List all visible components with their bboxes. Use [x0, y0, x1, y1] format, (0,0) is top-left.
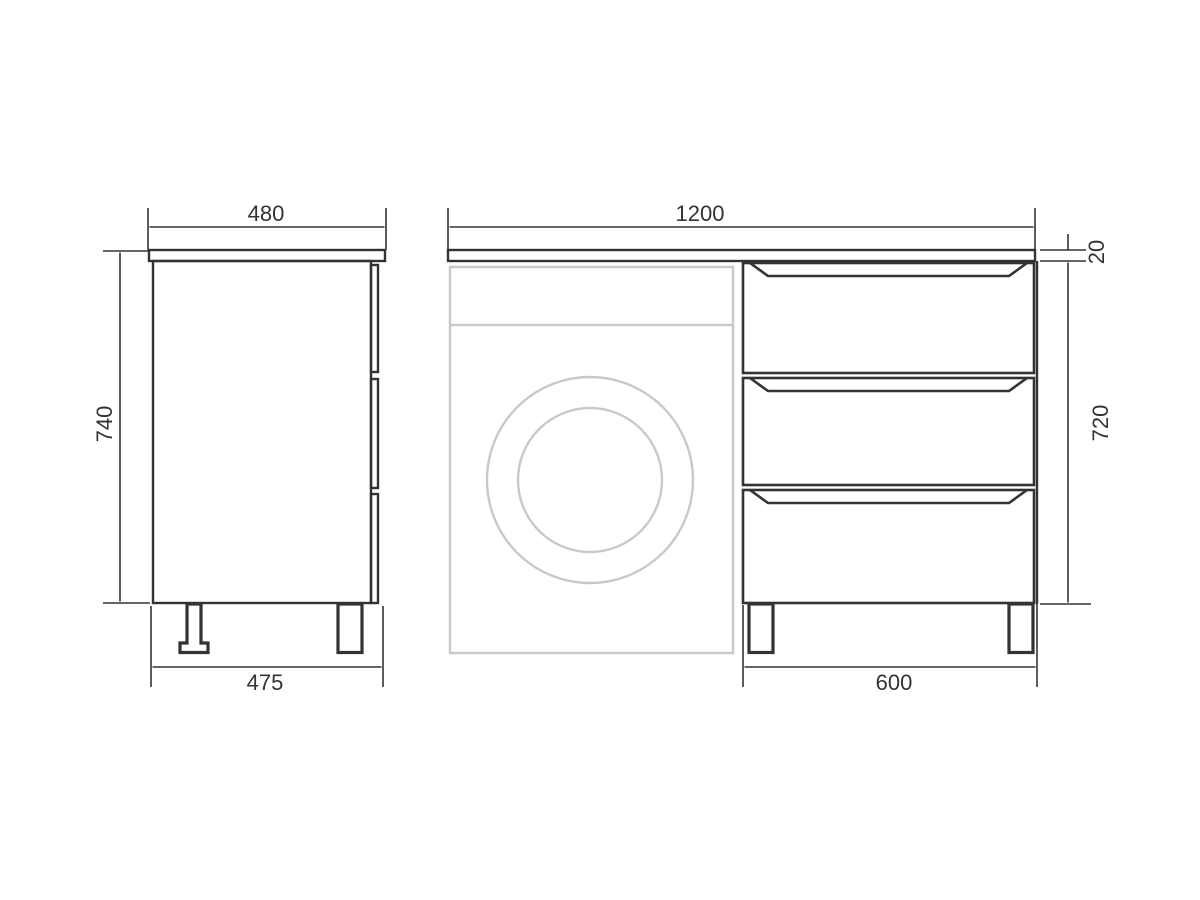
dimension-label-720: 720 [1088, 405, 1113, 442]
drawer-1-handle-recess [750, 263, 1027, 276]
drawer-3-handle-recess [750, 490, 1027, 503]
dimension-body-height: 720 [1040, 263, 1113, 605]
side-view: 480 740 475 [92, 201, 386, 695]
side-drawer-front-edge-2 [371, 379, 378, 488]
drawer-3 [743, 490, 1034, 603]
dimension-label-480: 480 [248, 201, 285, 226]
technical-drawing-canvas: 480 740 475 [0, 0, 1200, 900]
front-left-leg [749, 604, 773, 653]
front-right-leg [1009, 604, 1033, 653]
front-countertop [448, 250, 1035, 261]
drawing-svg: 480 740 475 [0, 0, 1200, 900]
dimension-label-600: 600 [876, 670, 913, 695]
drawing-root: 480 740 475 [92, 201, 1113, 695]
washing-machine [450, 267, 733, 653]
dimension-countertop-thickness: 20 [1040, 234, 1109, 264]
washer-door-inner-circle [518, 408, 662, 552]
drawer-2-handle-recess [750, 378, 1027, 391]
dimension-front-total-width: 1200 [448, 201, 1035, 250]
dimension-drawer-unit-width: 600 [743, 604, 1037, 695]
side-drawer-front-edge-3 [371, 494, 378, 603]
side-countertop [149, 250, 385, 261]
dimension-label-1200: 1200 [676, 201, 725, 226]
dimension-side-top-width: 480 [148, 201, 386, 250]
front-view: 1200 20 720 600 [448, 201, 1113, 695]
side-back-leg [338, 604, 362, 653]
side-front-leg [180, 604, 208, 653]
drawer-1 [743, 263, 1034, 373]
side-cabinet-body [153, 261, 371, 603]
dimension-label-20: 20 [1084, 240, 1109, 264]
drawer-unit [743, 261, 1037, 604]
dimension-label-475: 475 [247, 670, 284, 695]
dimension-label-740: 740 [92, 406, 117, 443]
dimension-side-height: 740 [92, 251, 150, 603]
drawer-2 [743, 378, 1034, 485]
side-drawer-front-edge-1 [371, 265, 378, 372]
